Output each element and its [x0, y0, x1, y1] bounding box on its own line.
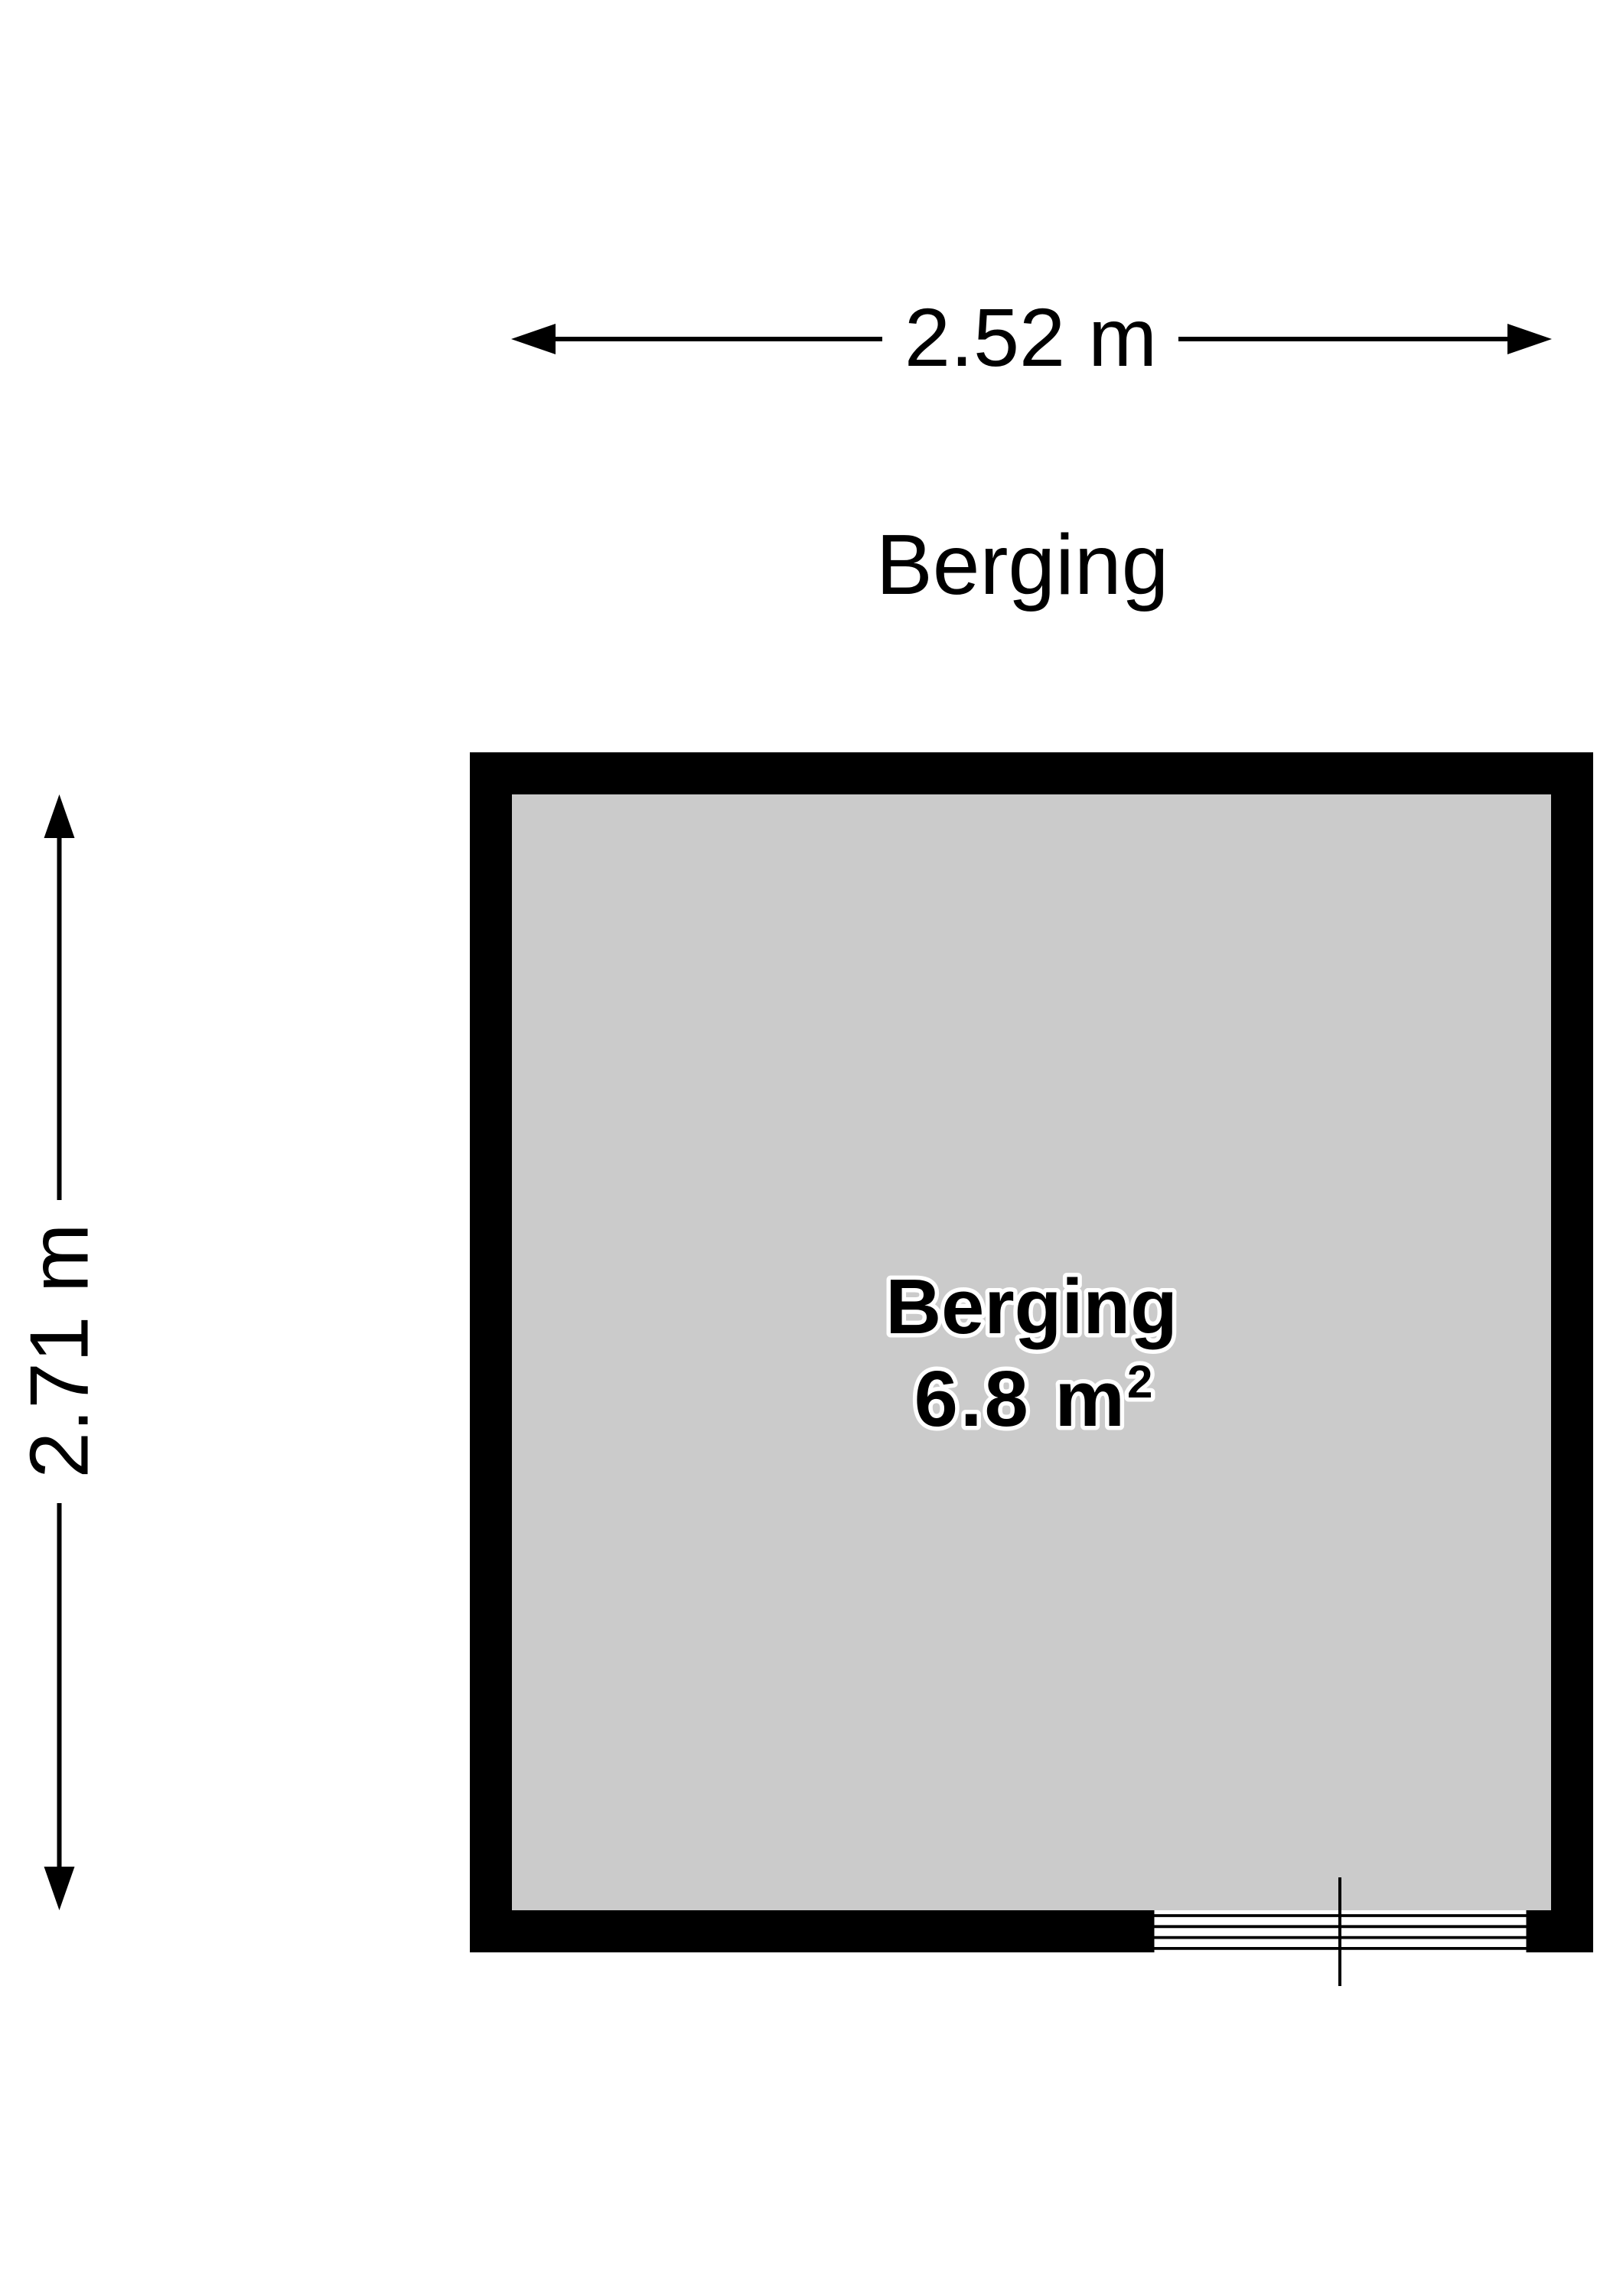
- svg-text:Berging: Berging: [885, 1264, 1178, 1350]
- svg-text:6.8 m2: 6.8 m2: [914, 1355, 1155, 1443]
- svg-text:2.71 m: 2.71 m: [13, 1223, 106, 1478]
- svg-text:Berging: Berging: [876, 517, 1169, 612]
- svg-text:2.52 m: 2.52 m: [904, 291, 1157, 383]
